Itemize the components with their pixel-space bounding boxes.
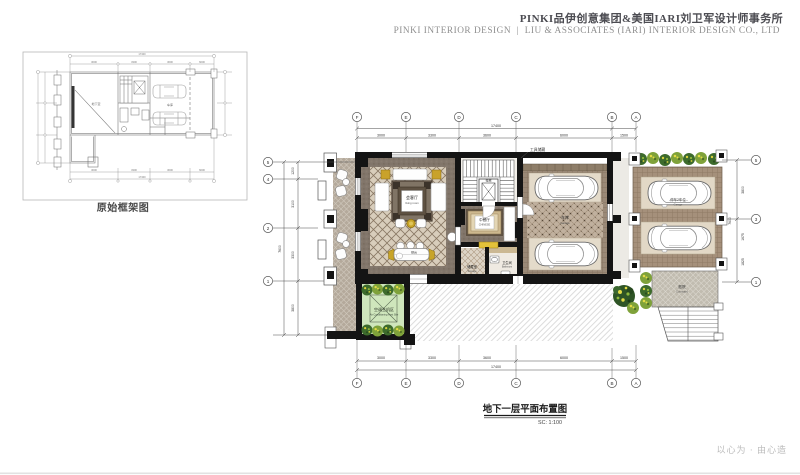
svg-text:3300: 3300 xyxy=(428,134,436,138)
svg-text:以心为 · 由心造: 以心为 · 由心造 xyxy=(717,444,788,455)
svg-text:1200: 1200 xyxy=(291,167,295,175)
svg-text:6000: 6000 xyxy=(560,134,568,138)
svg-text:Air Conditioning Host Site: Air Conditioning Host Site xyxy=(370,314,399,317)
svg-text:3600: 3600 xyxy=(483,134,491,138)
svg-text:3300: 3300 xyxy=(428,356,436,360)
svg-text:地下室: 地下室 xyxy=(91,101,100,106)
svg-text:3600: 3600 xyxy=(483,356,491,360)
svg-text:living room: living room xyxy=(405,201,419,205)
svg-text:B: B xyxy=(610,115,613,120)
svg-text:17400: 17400 xyxy=(138,52,146,56)
svg-text:PINKI品伊创意集团&美国IARI刘卫军设计师事务所: PINKI品伊创意集团&美国IARI刘卫军设计师事务所 xyxy=(520,11,783,25)
svg-text:E: E xyxy=(404,381,407,386)
svg-text:SC: 1:100: SC: 1:100 xyxy=(538,420,562,426)
svg-text:F: F xyxy=(356,115,359,120)
svg-text:3800: 3800 xyxy=(291,304,295,312)
svg-text:5: 5 xyxy=(267,160,270,165)
svg-text:吧台: 吧台 xyxy=(411,250,417,255)
svg-text:17400: 17400 xyxy=(491,124,501,128)
svg-text:3000: 3000 xyxy=(377,356,385,360)
svg-text:Garage: Garage xyxy=(560,221,570,225)
svg-text:工具储藏: 工具储藏 xyxy=(530,147,545,152)
svg-text:CHINESE: CHINESE xyxy=(479,223,491,227)
svg-text:3600: 3600 xyxy=(167,168,173,172)
svg-text:1500: 1500 xyxy=(620,134,628,138)
svg-text:1500: 1500 xyxy=(620,356,628,360)
svg-text:E: E xyxy=(404,115,407,120)
svg-text:会客厅: 会客厅 xyxy=(406,194,418,200)
svg-text:Storage: Storage xyxy=(467,269,477,273)
svg-text:17400: 17400 xyxy=(138,175,146,179)
svg-text:3300: 3300 xyxy=(131,168,137,172)
svg-text:5: 5 xyxy=(755,158,758,163)
svg-text:3000: 3000 xyxy=(91,60,97,64)
svg-text:空调主机区: 空调主机区 xyxy=(374,306,394,312)
svg-text:1675: 1675 xyxy=(741,233,745,241)
svg-text:6000: 6000 xyxy=(199,60,205,64)
svg-text:车库: 车库 xyxy=(167,102,173,107)
svg-text:电梯: 电梯 xyxy=(485,178,491,183)
svg-text:3600: 3600 xyxy=(167,60,173,64)
svg-text:卫生间: 卫生间 xyxy=(502,260,512,265)
svg-text:Courtyard: Courtyard xyxy=(676,290,688,294)
svg-text:4: 4 xyxy=(267,177,270,182)
svg-text:6000: 6000 xyxy=(560,356,568,360)
svg-text:1825: 1825 xyxy=(741,258,745,266)
svg-text:庭院: 庭院 xyxy=(678,284,686,289)
svg-text:Garage: Garage xyxy=(674,203,683,207)
svg-text:1: 1 xyxy=(267,279,270,284)
svg-text:3800: 3800 xyxy=(741,186,745,194)
svg-text:3000: 3000 xyxy=(91,168,97,172)
svg-text:Bathroom: Bathroom xyxy=(502,266,512,269)
svg-text:3300: 3300 xyxy=(131,60,137,64)
svg-text:F: F xyxy=(356,381,359,386)
svg-text:17400: 17400 xyxy=(491,365,501,369)
svg-text:储藏室: 储藏室 xyxy=(467,264,478,269)
svg-text:3: 3 xyxy=(755,217,758,222)
svg-text:车库: 车库 xyxy=(561,214,569,220)
svg-text:3100: 3100 xyxy=(291,200,295,208)
svg-text:3000: 3000 xyxy=(377,134,385,138)
svg-text:2: 2 xyxy=(267,226,270,231)
svg-text:7600: 7600 xyxy=(728,217,732,225)
svg-text:地下一层平面布置图: 地下一层平面布置图 xyxy=(483,403,567,415)
svg-text:停车2车位: 停车2车位 xyxy=(670,197,686,202)
svg-text:原始框架图: 原始框架图 xyxy=(97,201,150,214)
svg-text:7600: 7600 xyxy=(278,245,282,253)
svg-text:1: 1 xyxy=(755,280,758,285)
svg-text:3300: 3300 xyxy=(291,251,295,259)
svg-text:B: B xyxy=(610,381,613,386)
svg-text:6000: 6000 xyxy=(199,168,205,172)
svg-text:PINKI INTERIOR DESIGN | LIU: PINKI INTERIOR DESIGN | LIU & ASSOCIATES… xyxy=(394,25,780,36)
